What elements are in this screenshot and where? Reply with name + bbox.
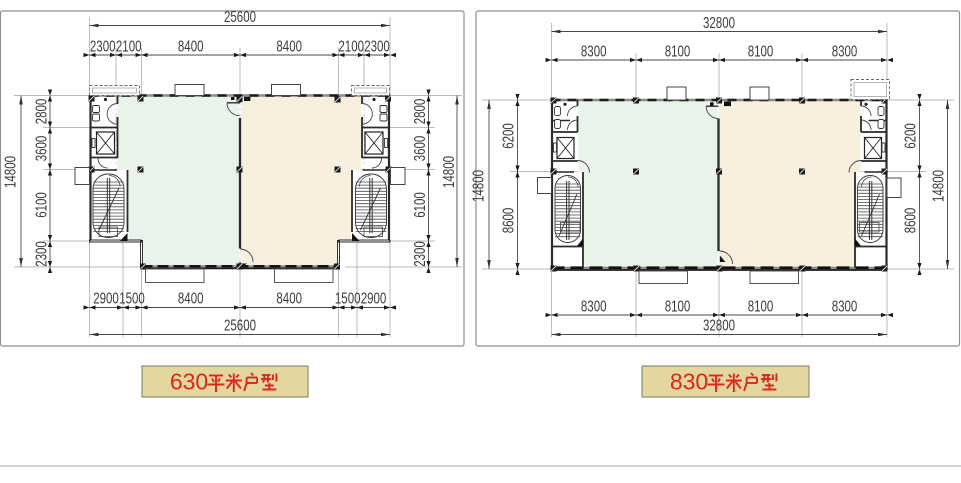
svg-text:14800: 14800 <box>931 170 948 202</box>
svg-text:25600: 25600 <box>224 9 256 26</box>
svg-text:2300: 2300 <box>90 39 116 56</box>
svg-text:830: 830 <box>670 369 708 395</box>
svg-text:2300: 2300 <box>412 241 429 267</box>
svg-text:8300: 8300 <box>581 44 607 61</box>
svg-text:8400: 8400 <box>276 291 302 308</box>
svg-text:8400: 8400 <box>178 39 204 56</box>
svg-text:8100: 8100 <box>665 299 691 316</box>
svg-text:6100: 6100 <box>412 192 429 218</box>
svg-text:8100: 8100 <box>665 44 691 61</box>
svg-text:32800: 32800 <box>703 15 735 32</box>
svg-text:8600: 8600 <box>903 207 920 233</box>
svg-text:8100: 8100 <box>748 44 774 61</box>
svg-text:8300: 8300 <box>581 299 607 316</box>
svg-text:6200: 6200 <box>501 123 518 149</box>
svg-text:2100: 2100 <box>116 39 142 56</box>
svg-text:2900: 2900 <box>93 291 119 308</box>
svg-text:2300: 2300 <box>34 241 51 267</box>
svg-text:2900: 2900 <box>361 291 387 308</box>
svg-text:2800: 2800 <box>412 98 429 124</box>
svg-text:630: 630 <box>170 369 208 395</box>
svg-text:2100: 2100 <box>338 39 364 56</box>
svg-text:6200: 6200 <box>903 123 920 149</box>
svg-text:1500: 1500 <box>119 291 145 308</box>
svg-text:8100: 8100 <box>748 299 774 316</box>
svg-text:8600: 8600 <box>501 207 518 233</box>
svg-text:2300: 2300 <box>364 39 390 56</box>
svg-text:25600: 25600 <box>224 318 256 335</box>
svg-text:32800: 32800 <box>703 318 735 335</box>
svg-text:3600: 3600 <box>412 135 429 161</box>
svg-text:8400: 8400 <box>178 291 204 308</box>
svg-text:14800: 14800 <box>3 156 20 188</box>
svg-text:3600: 3600 <box>34 135 51 161</box>
svg-text:8300: 8300 <box>832 299 858 316</box>
svg-text:14800: 14800 <box>471 170 488 202</box>
svg-text:1500: 1500 <box>335 291 361 308</box>
svg-text:6100: 6100 <box>34 192 51 218</box>
svg-text:8300: 8300 <box>832 44 858 61</box>
svg-text:2800: 2800 <box>34 98 51 124</box>
svg-text:8400: 8400 <box>276 39 302 56</box>
svg-text:14800: 14800 <box>441 156 458 188</box>
